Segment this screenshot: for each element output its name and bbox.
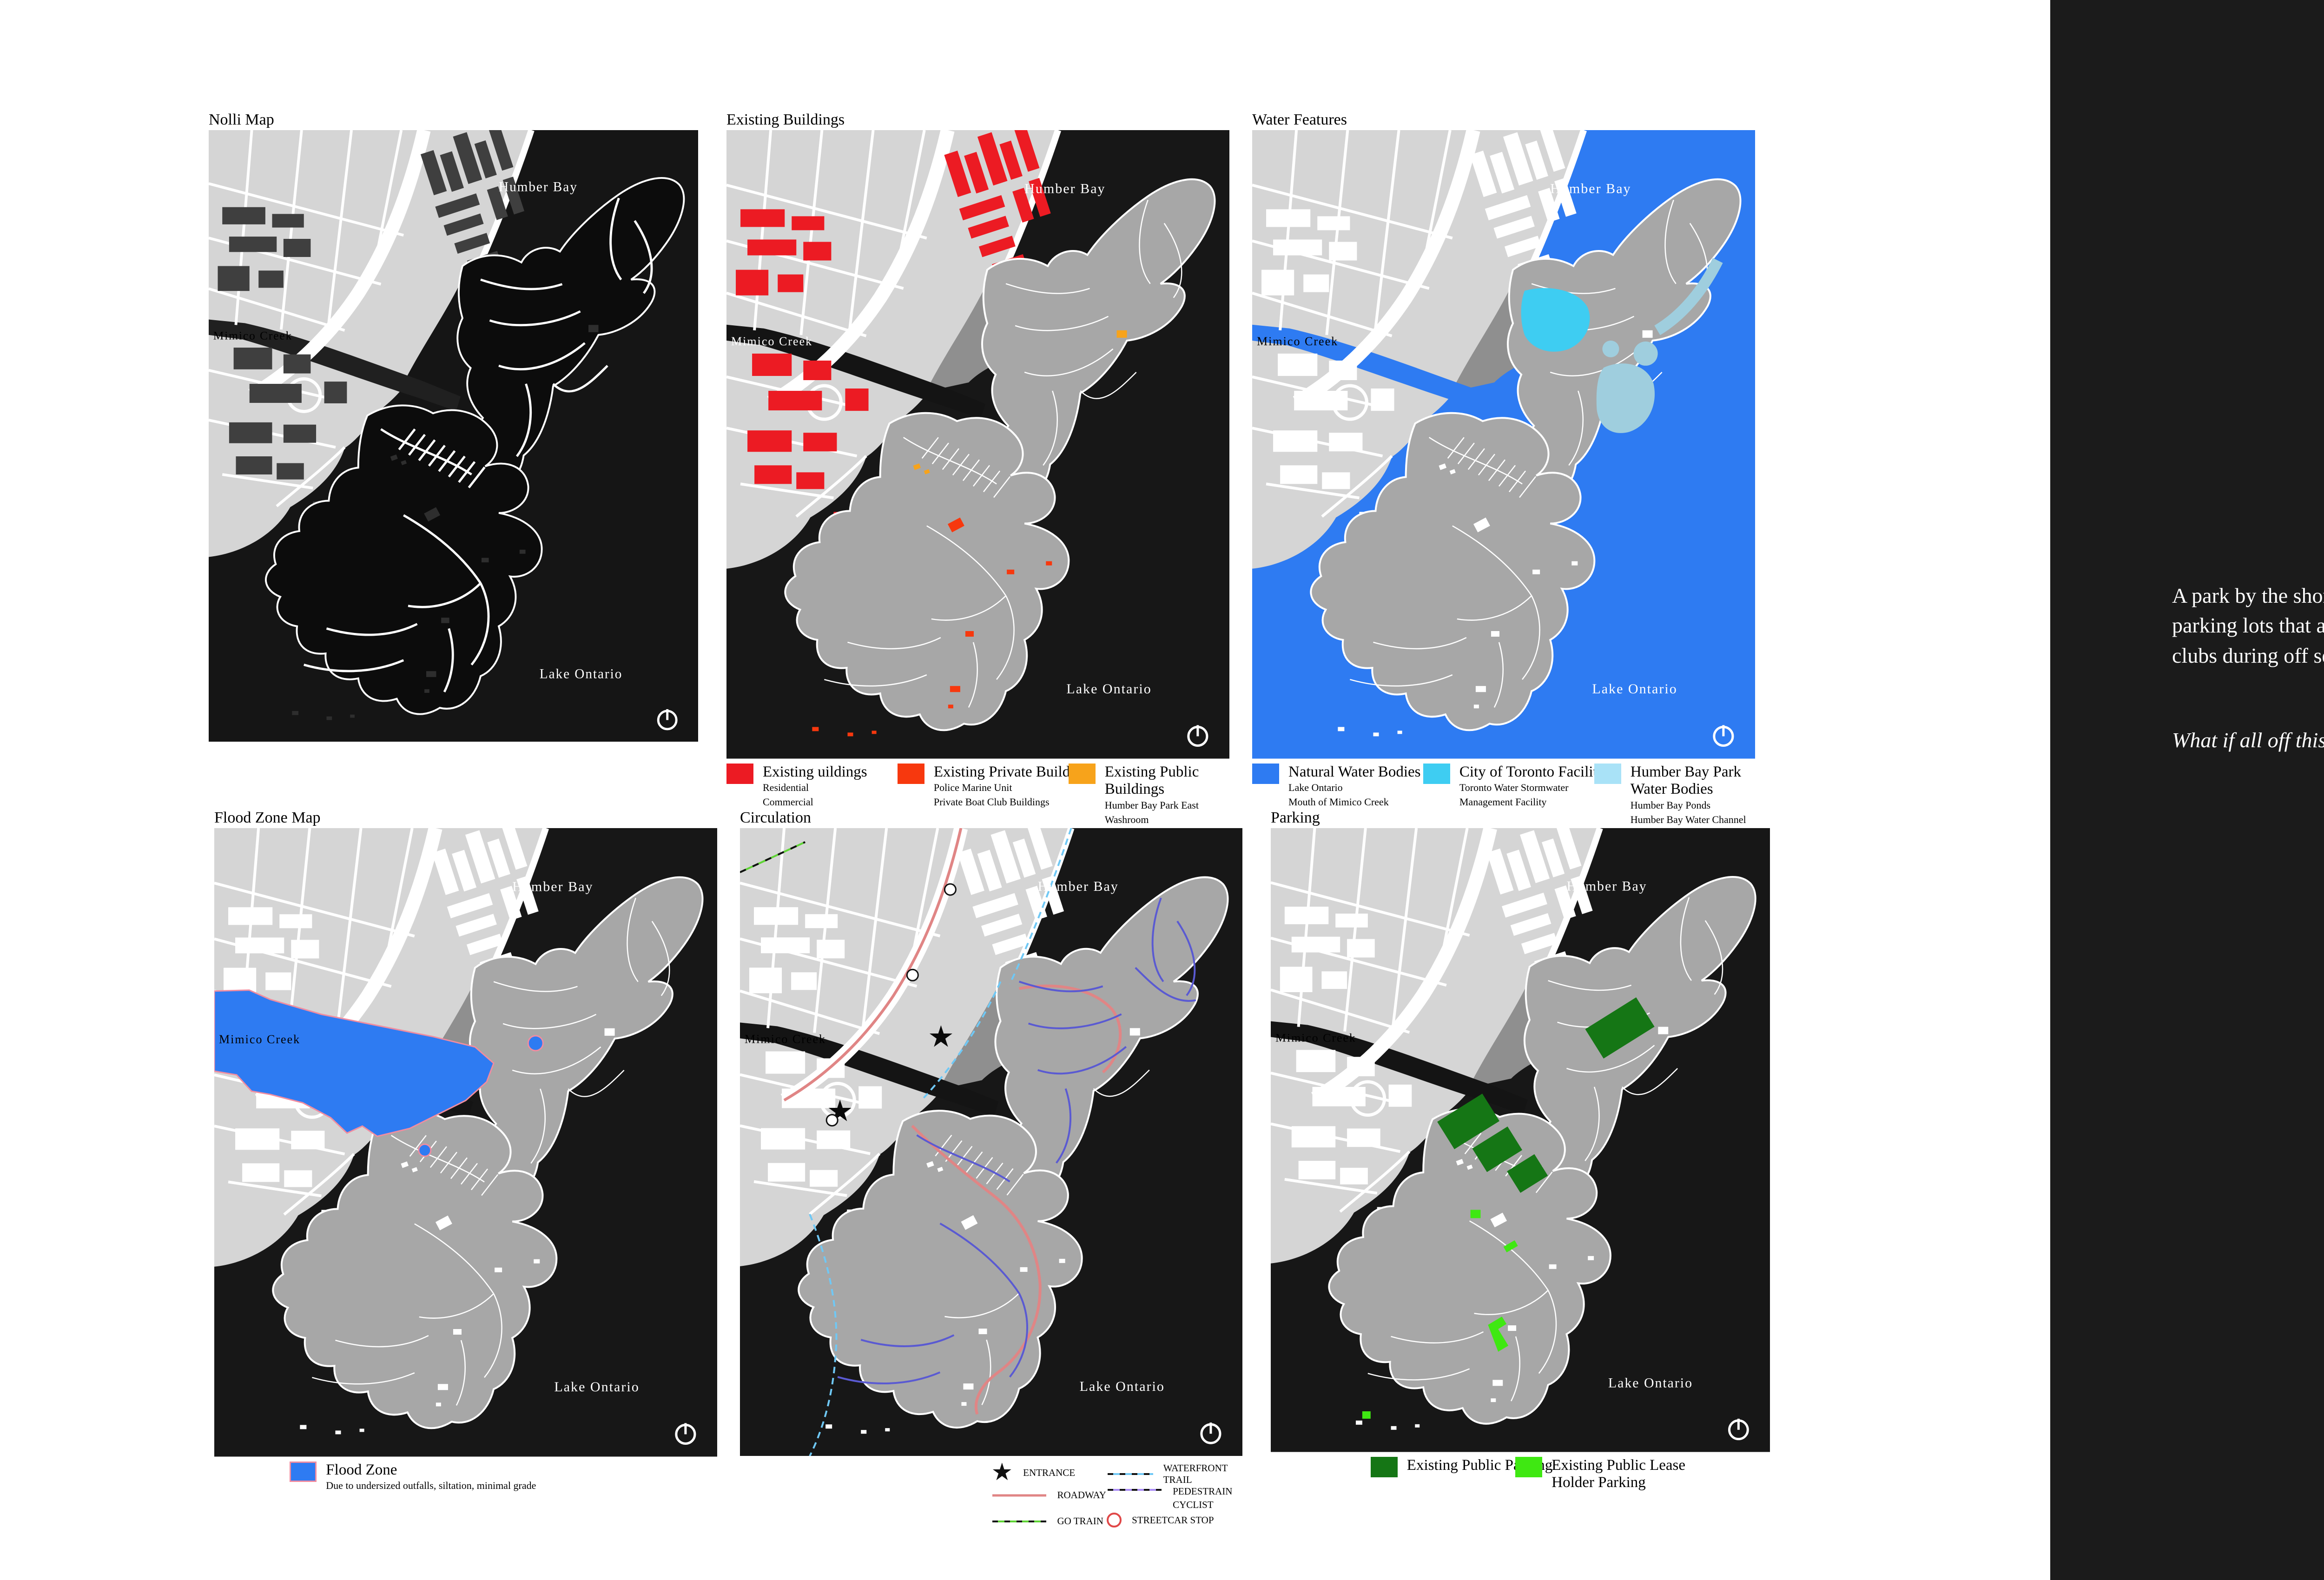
- legend-water-features: Natural Water Bodies Lake Ontario Mouth …: [1252, 764, 1755, 810]
- presentation-board: Nolli Map Humber Bay Mimico Creek Lake O…: [0, 0, 2324, 1580]
- legend-item-entrance: ★ ENTRANCE: [991, 1461, 1076, 1485]
- go-train-line-sample: [991, 1519, 1047, 1524]
- legend-item: Existing Public Lease Holder Parking: [1515, 1457, 1705, 1492]
- label-humber-bay: Humber Bay: [1566, 878, 1647, 894]
- legend-parking: Existing Public Parking Existing Public …: [1271, 1457, 1770, 1503]
- label-mimico-creek: Mimico Creek: [219, 1033, 300, 1046]
- entrance-star-icon: ★: [928, 1020, 954, 1053]
- streetcar-stop-icon: [1107, 1513, 1122, 1527]
- narrative-text-block: A park by the shore, exquisite yet prone…: [2172, 581, 2324, 756]
- label-mimico-creek: Mimico Creek: [731, 335, 812, 348]
- entrance-star-icon: ★: [991, 1461, 1013, 1485]
- legend-flood-zone: Flood Zone Due to undersized outfalls, s…: [214, 1461, 717, 1508]
- legend-item: Flood Zone Due to undersized outfalls, s…: [290, 1461, 536, 1494]
- existing-buildings-map: Humber Bay Mimico Creek Lake Ontario: [726, 130, 1229, 759]
- legend-swatch: [1371, 1457, 1398, 1477]
- legend-item-pedestrain-cyclist: PEDESTRAIN CYCLIST: [1107, 1485, 1232, 1511]
- map-title-flood-zone: Flood Zone Map: [214, 808, 717, 828]
- legend-item: Existing Private Buildings Police Marine…: [898, 764, 1096, 810]
- legend-item-waterfront-trail: WATERFRONT TRAIL: [1107, 1462, 1242, 1486]
- legend-swatch: [1594, 764, 1621, 784]
- legend-item-go-train: GO TRAIN: [991, 1515, 1103, 1527]
- site-analysis-paragraph: A park by the shore, exquisite yet prone…: [2172, 581, 2324, 671]
- water-features-map: Humber Bay Mimico Creek Lake Ontario: [1252, 130, 1755, 759]
- legend-item: Natural Water Bodies Lake Ontario Mouth …: [1252, 764, 1420, 810]
- label-humber-bay: Humber Bay: [1024, 180, 1105, 196]
- label-humber-bay: Humber Bay: [1550, 180, 1631, 196]
- flood-zone-map: Humber Bay Mimico Creek Lake Ontario: [214, 828, 717, 1457]
- label-lake-ontario: Lake Ontario: [1066, 681, 1151, 697]
- map-title-nolli: Nolli Map: [209, 110, 698, 130]
- label-mimico-creek: Mimico Creek: [1275, 1031, 1356, 1044]
- legend-circulation: ★ ENTRANCE ROADWAY GO TRAIN: [740, 1461, 1242, 1535]
- map-title-existing-buildings: Existing Buildings: [726, 110, 1229, 130]
- map-panel-flood-zone: Flood Zone Map Humber Bay Mimico Creek L…: [214, 808, 717, 1508]
- legend-item-streetcar-stop: STREETCAR STOP: [1107, 1513, 1214, 1527]
- legend-item-roadway: ROADWAY: [991, 1489, 1106, 1501]
- label-mimico-creek: Mimico Creek: [1257, 335, 1338, 348]
- waterfront-trail-line-sample: [1107, 1472, 1153, 1476]
- map-panel-circulation: Circulation: [740, 808, 1242, 1535]
- label-humber-bay: Humber Bay: [512, 878, 593, 894]
- legend-swatch: [1423, 764, 1450, 784]
- legend-swatch: [726, 764, 753, 784]
- legend-swatch: [1252, 764, 1279, 784]
- legend-swatch: [1515, 1457, 1542, 1477]
- label-humber-bay: Humber Bay: [499, 180, 578, 195]
- map-title-circulation: Circulation: [740, 808, 1242, 828]
- label-humber-bay: Humber Bay: [1038, 879, 1119, 894]
- label-mimico-creek: Mimico Creek: [213, 329, 293, 342]
- nolli-map: Humber Bay Mimico Creek Lake Ontario: [209, 130, 698, 742]
- legend-existing-buildings: Existing uildings Residential Commercial…: [726, 764, 1229, 810]
- map-panel-parking: Parking Humber Bay Mimico Creek Lake Ont…: [1271, 808, 1770, 1503]
- narrative-panel: A park by the shore, exquisite yet prone…: [2050, 0, 2324, 1580]
- label-lake-ontario: Lake Ontario: [1608, 1375, 1693, 1390]
- map-panel-nolli: Nolli Map Humber Bay Mimico Creek Lake O…: [209, 110, 698, 742]
- legend-swatch: [1069, 764, 1096, 784]
- map-title-water-features: Water Features: [1252, 110, 1755, 130]
- map-panel-water-features: Water Features Humber Bay Mimico Creek L…: [1252, 110, 1755, 810]
- roadway-line-sample: [991, 1493, 1047, 1498]
- label-lake-ontario: Lake Ontario: [554, 1379, 639, 1395]
- legend-item: Existing uildings Residential Commercial: [726, 764, 867, 810]
- map-title-parking: Parking: [1271, 808, 1770, 828]
- label-lake-ontario: Lake Ontario: [540, 667, 623, 682]
- design-question: What if all off this is simply removed, …: [2172, 725, 2324, 755]
- label-lake-ontario: Lake Ontario: [1592, 681, 1677, 697]
- legend-swatch: [898, 764, 924, 784]
- circulation-map: ★ ★ Humber Bay Mimico Creek Lake Ontario: [740, 828, 1242, 1456]
- map-panel-existing-buildings: Existing Buildings Humber Bay Mimico Cre…: [726, 110, 1229, 810]
- legend-item: City of Toronto Facilities Toronto Water…: [1423, 764, 1614, 810]
- parking-map: Humber Bay Mimico Creek Lake Ontario: [1271, 828, 1770, 1452]
- legend-swatch: [290, 1461, 317, 1482]
- pedestrain-cyclist-line-sample: [1107, 1488, 1162, 1492]
- label-mimico-creek: Mimico Creek: [745, 1032, 826, 1046]
- label-lake-ontario: Lake Ontario: [1080, 1379, 1165, 1394]
